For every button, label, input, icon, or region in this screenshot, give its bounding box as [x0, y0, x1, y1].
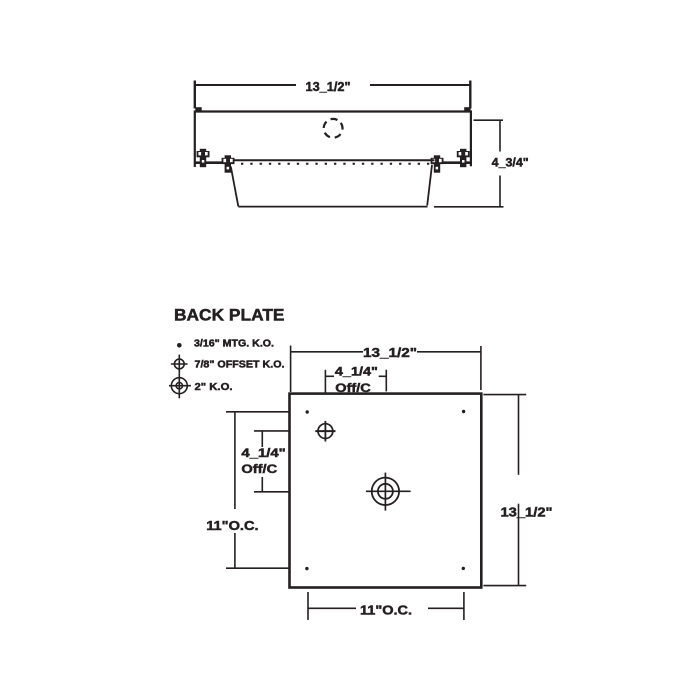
svg-text:13_1/2": 13_1/2": [306, 79, 351, 94]
svg-text:13_1/2": 13_1/2": [363, 345, 417, 360]
svg-text:11"O.C.: 11"O.C.: [206, 518, 258, 533]
svg-text:2" K.O.: 2" K.O.: [195, 382, 233, 393]
svg-text:13_1/2": 13_1/2": [501, 505, 553, 520]
svg-text:4_3/4": 4_3/4": [492, 155, 529, 169]
svg-text:Off/C: Off/C: [335, 381, 371, 395]
svg-text:4_1/4": 4_1/4": [335, 365, 378, 379]
svg-text:BACK PLATE: BACK PLATE: [174, 305, 285, 324]
svg-text:7/8" OFFSET K.O.: 7/8" OFFSET K.O.: [195, 359, 285, 370]
svg-text:11"O.C.: 11"O.C.: [360, 603, 412, 618]
svg-text:3/16" MTG. K.O.: 3/16" MTG. K.O.: [194, 339, 274, 350]
svg-text:Off/C: Off/C: [241, 462, 277, 476]
svg-text:4_1/4": 4_1/4": [241, 446, 285, 460]
